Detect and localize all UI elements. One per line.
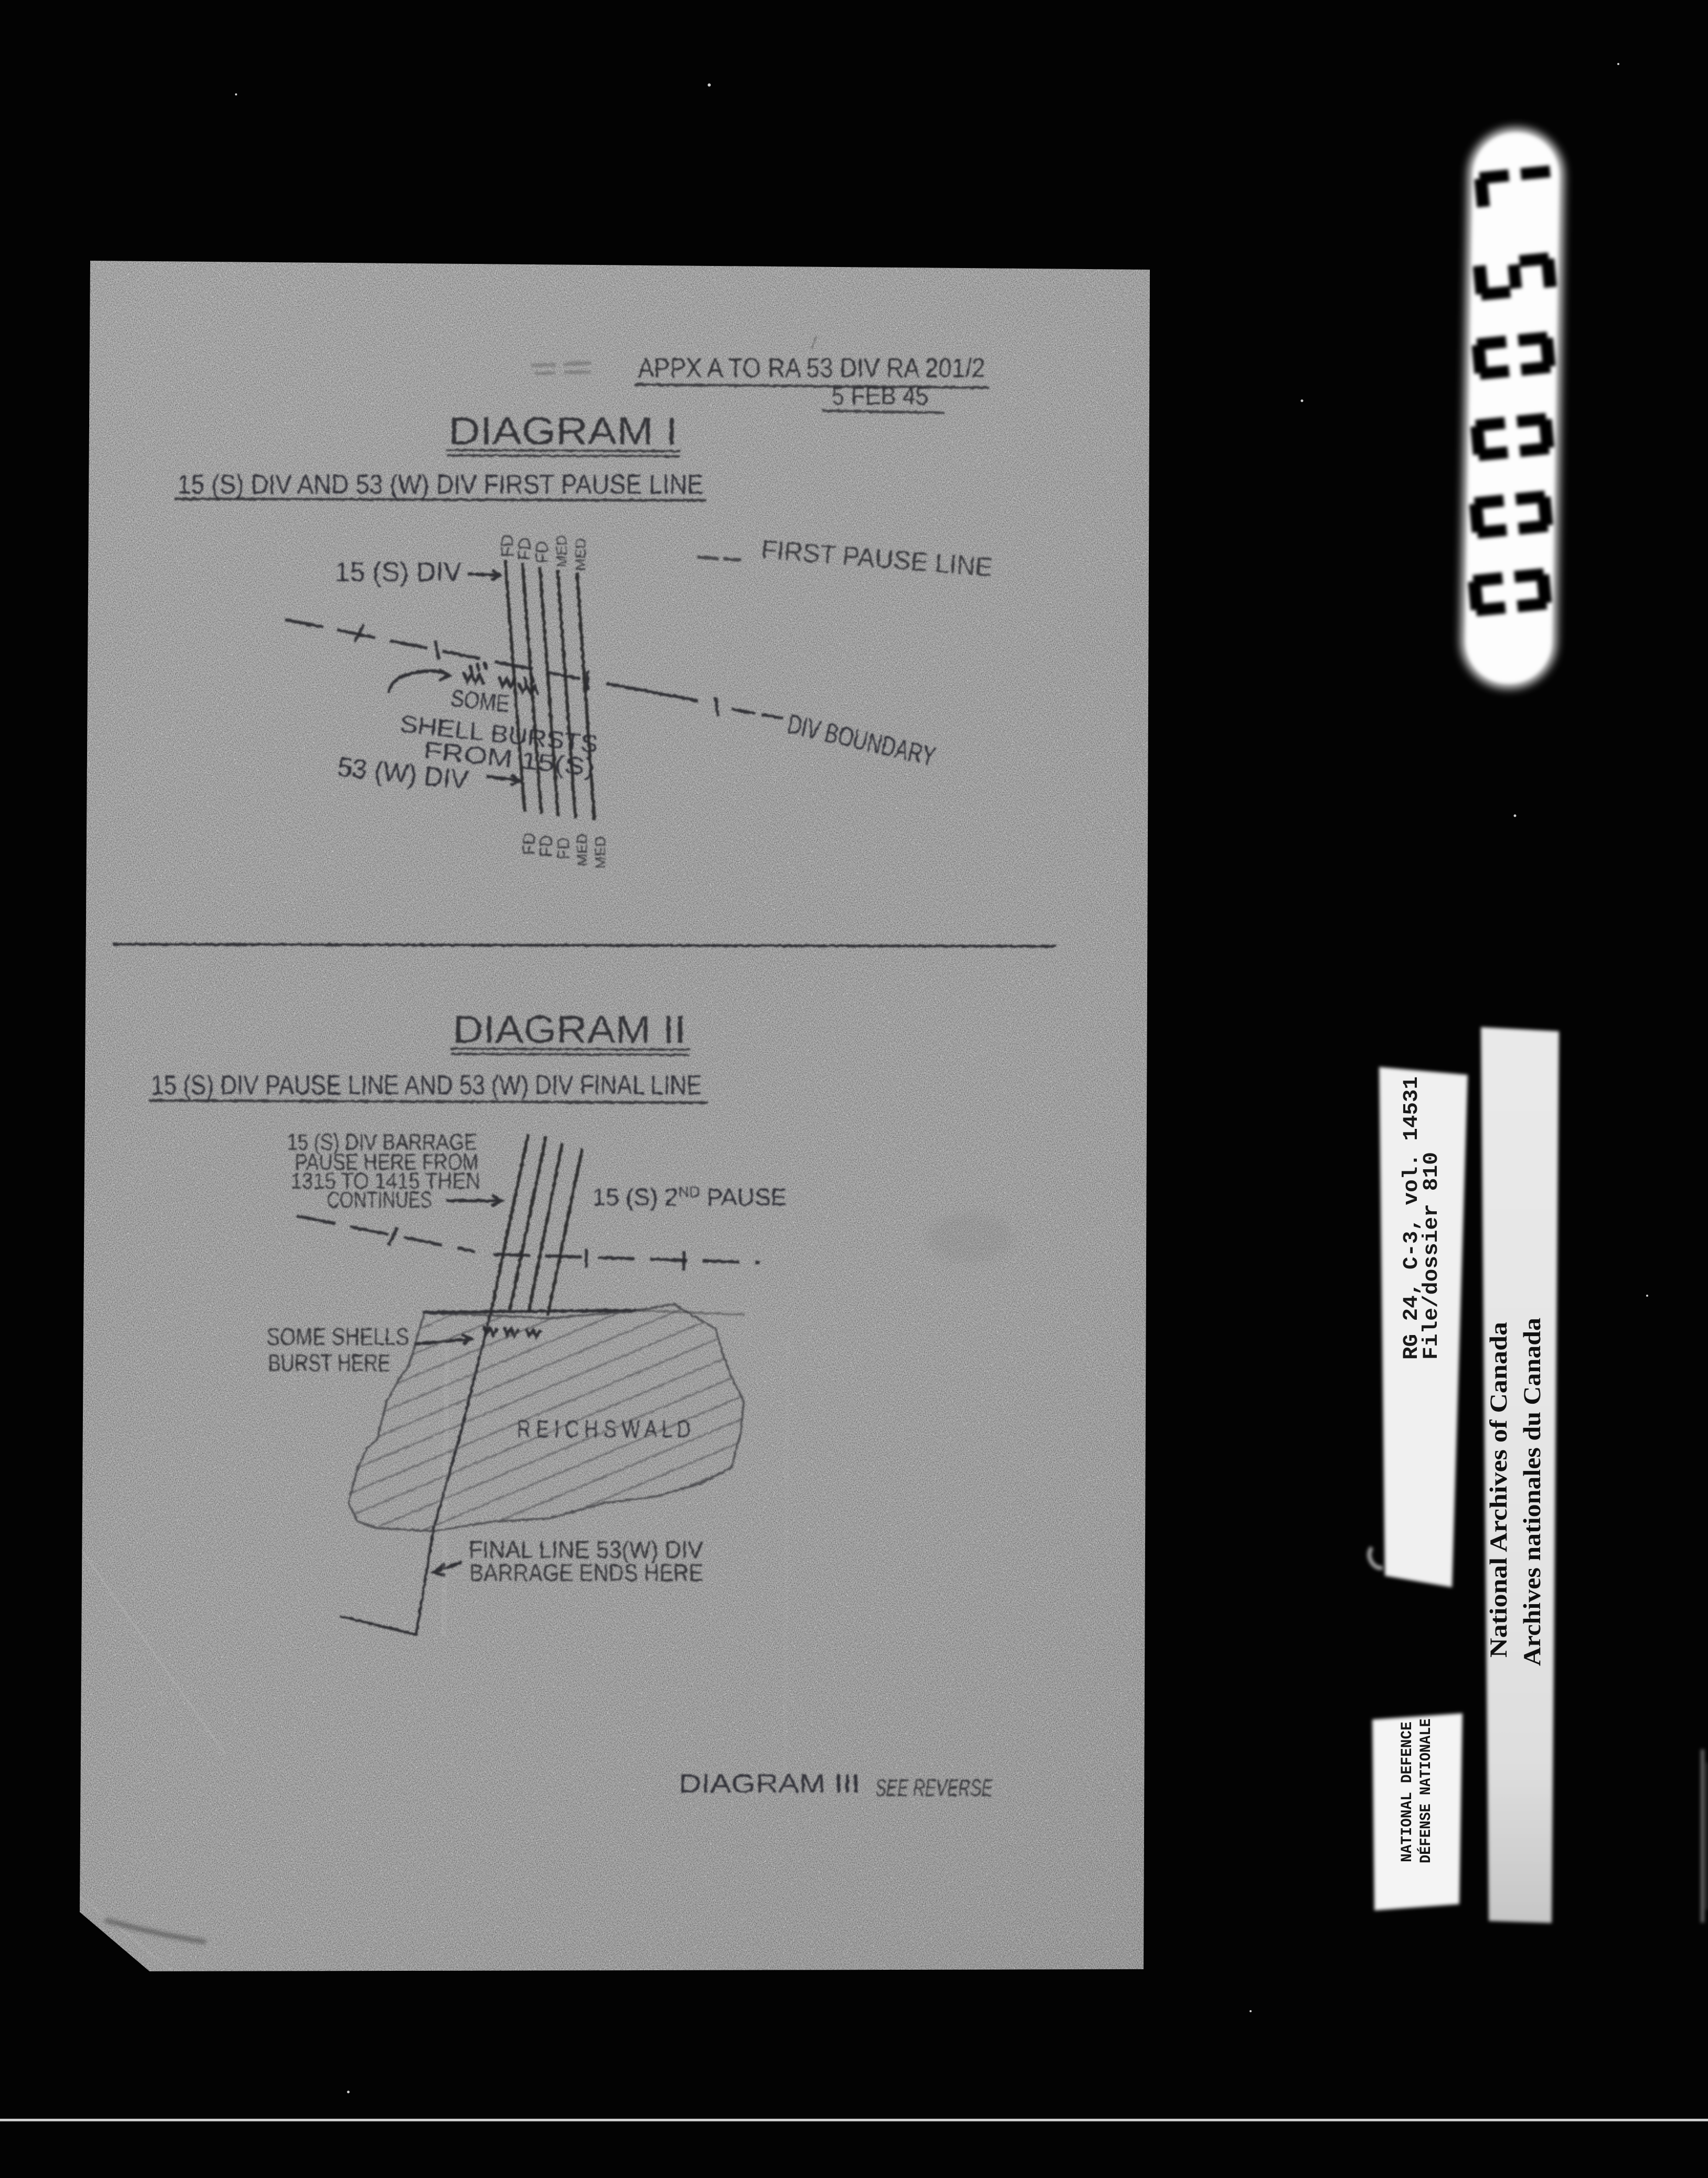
svg-text:MED: MED xyxy=(574,834,590,866)
svg-text:15 (S) DIV PAUSE LINE AND 53 (: 15 (S) DIV PAUSE LINE AND 53 (W) DIV FIN… xyxy=(151,1070,702,1101)
svg-text:SEE REVERSE: SEE REVERSE xyxy=(875,1774,993,1801)
svg-text:MED: MED xyxy=(572,538,589,571)
svg-text:FD: FD xyxy=(532,541,551,563)
svg-text:MED: MED xyxy=(592,836,609,869)
svg-text:FD: FD xyxy=(554,837,573,860)
svg-text:BURST HERE: BURST HERE xyxy=(268,1349,390,1376)
svg-text:15 (S) DIV AND 53 (W) DIV FIR: 15 (S) DIV AND 53 (W) DIV FIRST PAUSE LI… xyxy=(177,469,703,500)
svg-text:APPX A TO RA 53 DIV RA 201/2: APPX A TO RA 53 DIV RA 201/2 xyxy=(638,353,985,383)
svg-text:FD: FD xyxy=(515,538,534,560)
svg-text:15 (S) DIV: 15 (S) DIV xyxy=(335,557,462,588)
svg-text:National Archives of Canada: National Archives of Canada xyxy=(1485,1322,1512,1658)
svg-text:Archives nationales du Canada: Archives nationales du Canada xyxy=(1519,1318,1546,1666)
svg-text:DIAGRAM III: DIAGRAM III xyxy=(679,1769,860,1798)
svg-text:MED: MED xyxy=(553,535,570,568)
svg-text:BARRAGE ENDS HERE: BARRAGE ENDS HERE xyxy=(469,1559,703,1586)
svg-text:NATIONAL DEFENCE: NATIONAL DEFENCE xyxy=(1399,1722,1416,1862)
svg-text:DIAGRAM I: DIAGRAM I xyxy=(449,409,678,453)
svg-text:File/dossier 810: File/dossier 810 xyxy=(1420,1152,1444,1360)
svg-text:FD: FD xyxy=(537,835,556,857)
svg-text:DIAGRAM II: DIAGRAM II xyxy=(453,1008,686,1051)
svg-text:FD: FD xyxy=(498,535,517,557)
svg-text:CONTINUES: CONTINUES xyxy=(327,1187,432,1213)
svg-text:FD: FD xyxy=(519,832,538,855)
svg-text:SOME SHELLS: SOME SHELLS xyxy=(266,1323,409,1350)
svg-text:DÉFENSE NATIONALE: DÉFENSE NATIONALE xyxy=(1417,1718,1435,1863)
svg-text:R E I C H S W A L D: R E I C H S W A L D xyxy=(517,1415,691,1443)
